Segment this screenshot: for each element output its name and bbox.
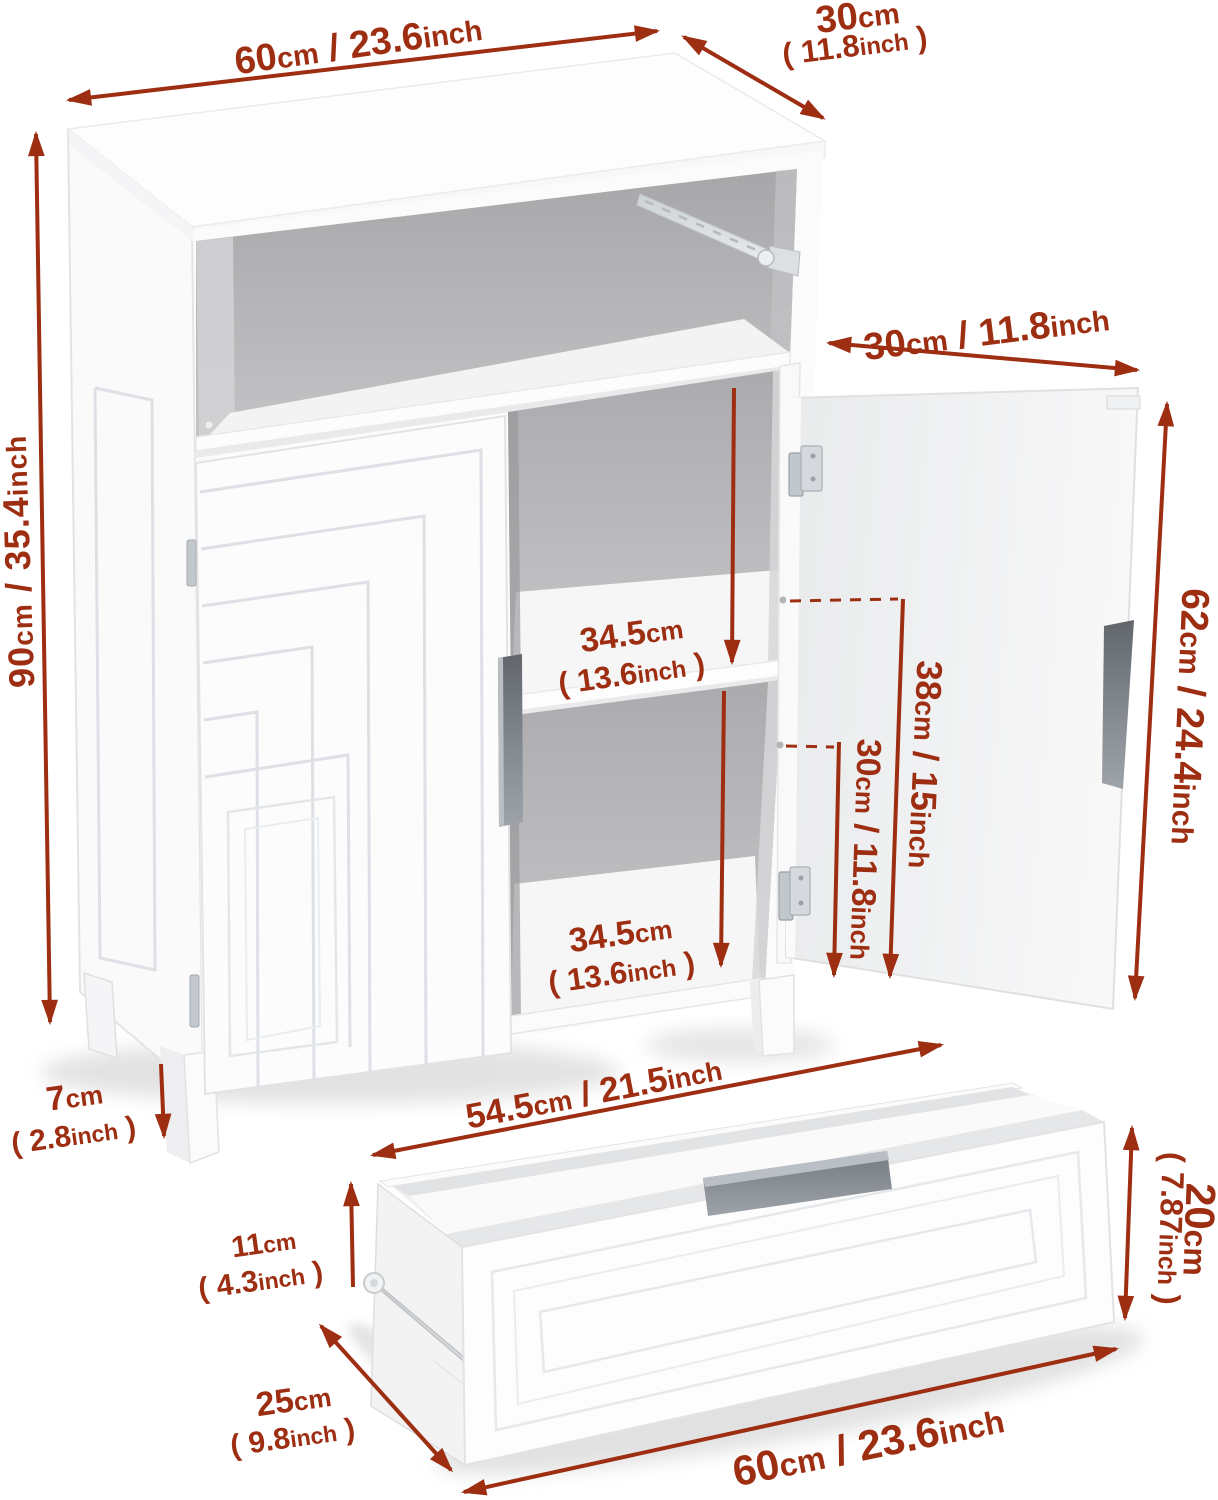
svg-text:25cm: 25cm (253, 1376, 333, 1424)
svg-text:( 7.87inch ): ( 7.87inch ) (1150, 1151, 1191, 1305)
svg-text:90cm / 35.4inch: 90cm / 35.4inch (0, 434, 42, 688)
svg-text:( 11.8inch ): ( 11.8inch ) (780, 19, 929, 72)
svg-text:11cm: 11cm (229, 1223, 298, 1265)
svg-text:62cm / 24.4inch: 62cm / 24.4inch (1162, 587, 1216, 845)
svg-text:60cm / 23.6inch: 60cm / 23.6inch (232, 7, 485, 83)
svg-text:( 4.3inch ): ( 4.3inch ) (196, 1256, 325, 1306)
svg-text:( 2.8inch ): ( 2.8inch ) (9, 1111, 138, 1161)
svg-text:( 9.8inch ): ( 9.8inch ) (228, 1413, 357, 1463)
